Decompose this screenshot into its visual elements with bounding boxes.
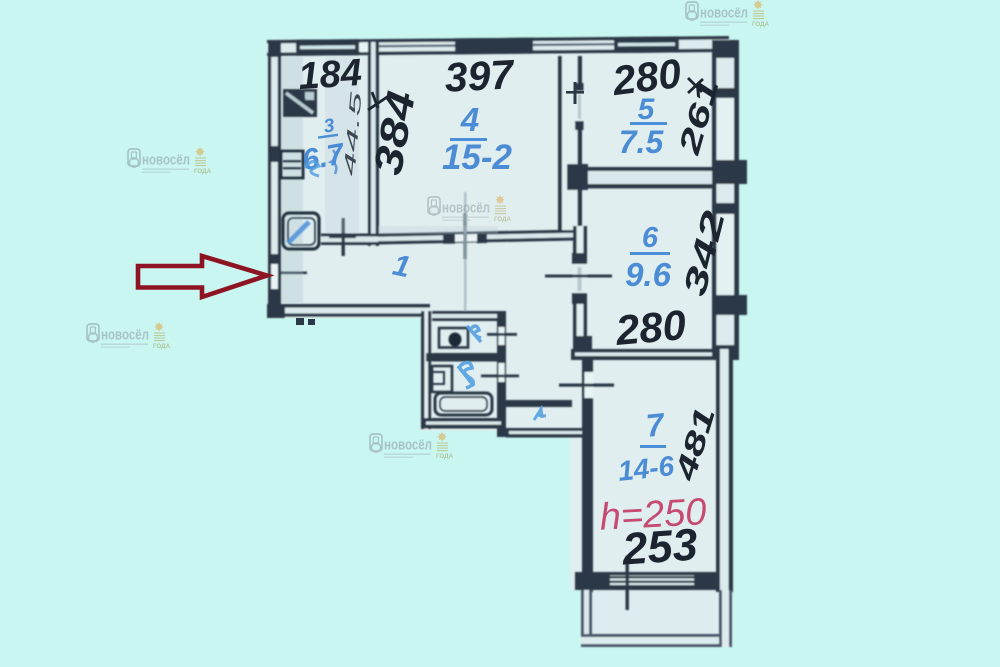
svg-text:9.6: 9.6 [625, 256, 672, 293]
svg-text:4: 4 [460, 101, 479, 138]
svg-text:5: 5 [638, 93, 656, 126]
svg-text:15-2: 15-2 [442, 138, 513, 177]
svg-text:6: 6 [642, 222, 659, 254]
svg-text:397: 397 [444, 51, 517, 101]
svg-text:7.5: 7.5 [619, 124, 665, 160]
svg-text:280: 280 [613, 301, 688, 354]
svg-text:14-6: 14-6 [617, 450, 676, 487]
svg-text:h=250: h=250 [599, 491, 708, 539]
svg-text:184: 184 [297, 52, 363, 98]
